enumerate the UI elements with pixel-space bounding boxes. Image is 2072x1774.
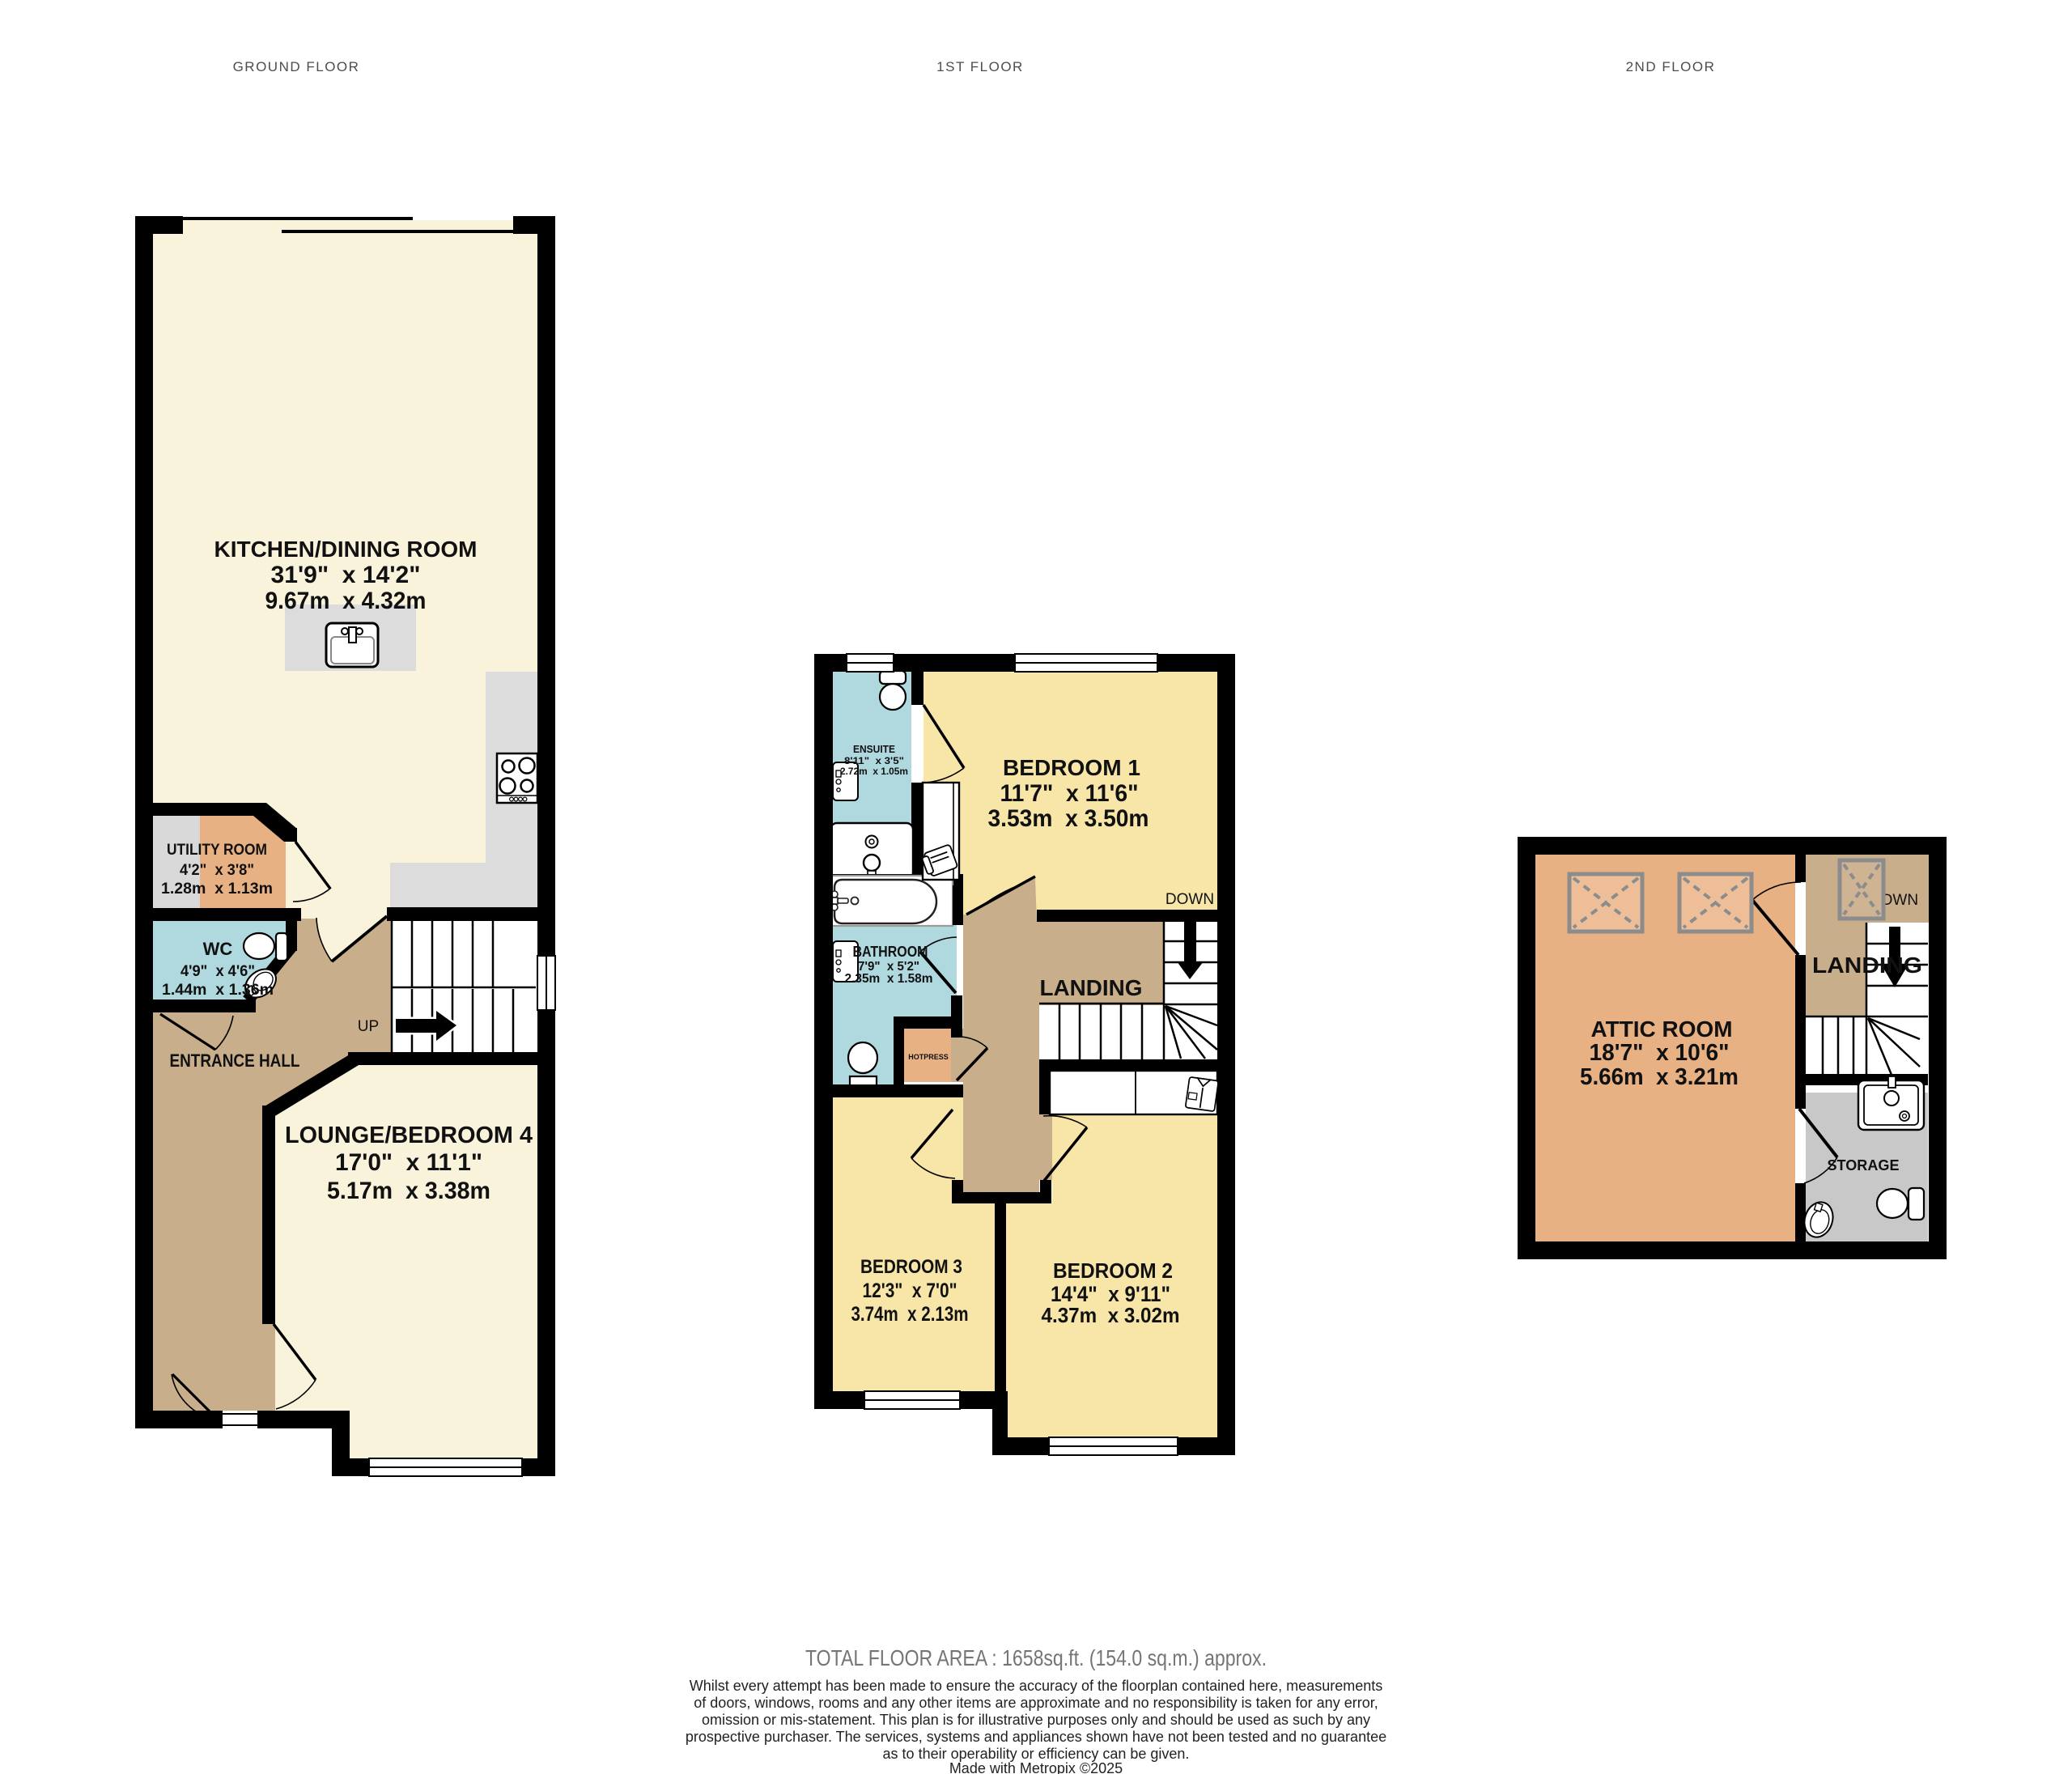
svg-text:2ND FLOOR: 2ND FLOOR (1626, 59, 1716, 74)
svg-text:BEDROOM 2: BEDROOM 2 (1053, 1258, 1173, 1283)
svg-text:17'0" x 11'1": 17'0" x 11'1" (335, 1149, 482, 1176)
svg-text:5.17m x 3.38m: 5.17m x 3.38m (327, 1178, 490, 1204)
svg-text:UP: UP (358, 1018, 379, 1035)
svg-text:4.37m x 3.02m: 4.37m x 3.02m (1042, 1303, 1180, 1327)
svg-text:3.53m x 3.50m: 3.53m x 3.50m (988, 805, 1149, 832)
svg-text:2.35m x 1.58m: 2.35m x 1.58m (845, 972, 933, 986)
svg-text:ENSUITE: ENSUITE (853, 743, 895, 755)
svg-text:1.44m x 1.36m: 1.44m x 1.36m (162, 982, 274, 999)
svg-text:Whilst every attempt has been: Whilst every attempt has been made to en… (690, 1678, 1382, 1694)
svg-text:31'9" x 14'2": 31'9" x 14'2" (271, 562, 421, 588)
svg-text:HOTPRESS: HOTPRESS (908, 1053, 949, 1061)
svg-text:LANDING: LANDING (1040, 975, 1143, 1000)
svg-text:Made with Metropix ©2025: Made with Metropix ©2025 (949, 1760, 1123, 1774)
svg-text:DOWN: DOWN (1165, 891, 1214, 908)
svg-text:2.72m x 1.05m: 2.72m x 1.05m (840, 766, 908, 777)
svg-text:LANDING: LANDING (1812, 953, 1922, 978)
svg-text:12'3" x 7'0": 12'3" x 7'0" (863, 1280, 957, 1302)
svg-text:UTILITY ROOM: UTILITY ROOM (167, 842, 267, 859)
svg-text:4'2" x 3'8": 4'2" x 3'8" (180, 862, 254, 879)
svg-text:WC: WC (203, 939, 233, 959)
svg-text:5.66m x 3.21m: 5.66m x 3.21m (1580, 1064, 1739, 1090)
svg-text:18'7" x 10'6": 18'7" x 10'6" (1590, 1040, 1730, 1066)
svg-text:1ST FLOOR: 1ST FLOOR (936, 59, 1024, 74)
svg-text:prospective purchaser. The ser: prospective purchaser. The services, sys… (686, 1729, 1386, 1745)
svg-text:11'7" x 11'6": 11'7" x 11'6" (1000, 780, 1139, 807)
svg-text:4'9" x 4'6": 4'9" x 4'6" (180, 963, 255, 980)
svg-text:omission or mis-statement. Thi: omission or mis-statement. This plan is … (702, 1712, 1370, 1728)
svg-text:3.74m x 2.13m: 3.74m x 2.13m (851, 1303, 969, 1326)
svg-text:1.28m x 1.13m: 1.28m x 1.13m (161, 881, 273, 898)
svg-text:TOTAL FLOOR AREA : 1658sq.ft.: TOTAL FLOOR AREA : 1658sq.ft. (154.0 sq.… (805, 1645, 1267, 1670)
svg-text:KITCHEN/DINING ROOM: KITCHEN/DINING ROOM (214, 537, 478, 562)
svg-text:BEDROOM 3: BEDROOM 3 (860, 1256, 962, 1278)
svg-text:STORAGE: STORAGE (1828, 1157, 1900, 1173)
svg-text:as to their operability or eff: as to their operability or efficiency ca… (883, 1746, 1190, 1762)
svg-text:9.67m x 4.32m: 9.67m x 4.32m (265, 588, 427, 614)
svg-text:BEDROOM 1: BEDROOM 1 (1003, 755, 1140, 780)
svg-text:LOUNGE/BEDROOM 4: LOUNGE/BEDROOM 4 (285, 1123, 533, 1148)
svg-text:ENTRANCE HALL: ENTRANCE HALL (170, 1050, 300, 1071)
svg-text:8'11" x 3'5": 8'11" x 3'5" (844, 755, 904, 766)
svg-text:BATHROOM: BATHROOM (853, 944, 928, 960)
svg-text:GROUND FLOOR: GROUND FLOOR (233, 59, 360, 74)
svg-text:of doors, windows, rooms and a: of doors, windows, rooms and any other i… (694, 1695, 1378, 1711)
svg-text:ATTIC ROOM: ATTIC ROOM (1591, 1016, 1733, 1042)
